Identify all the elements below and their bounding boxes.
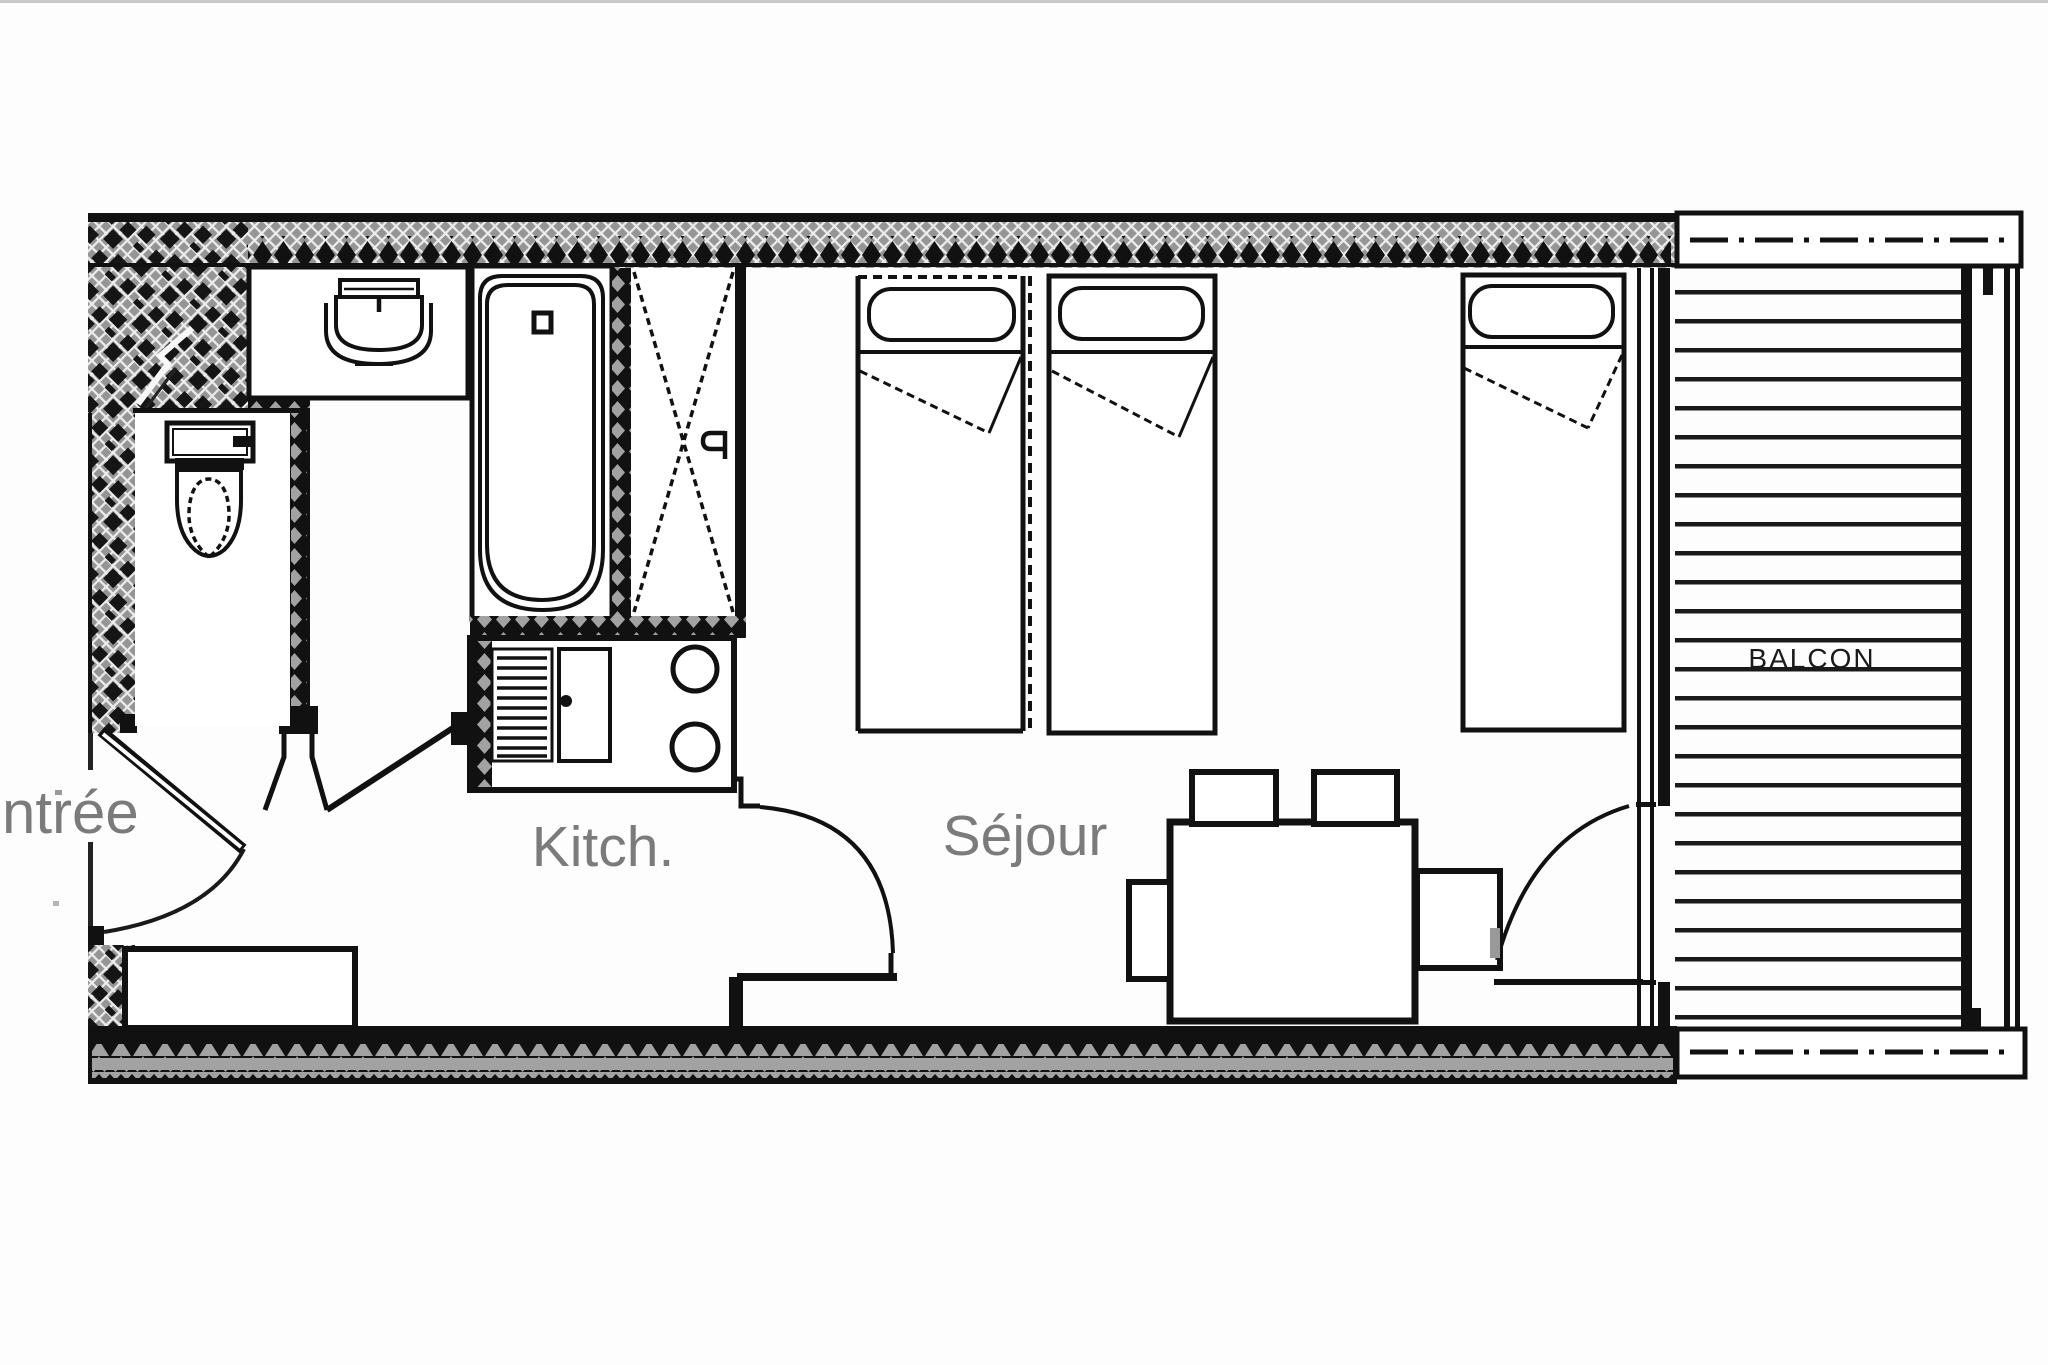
svg-text:BALCON: BALCON bbox=[1748, 643, 1875, 674]
svg-text:Kitch.: Kitch. bbox=[532, 815, 675, 879]
svg-text:Séjour: Séjour bbox=[943, 804, 1108, 868]
svg-text:ntrée: ntrée bbox=[2, 779, 139, 846]
